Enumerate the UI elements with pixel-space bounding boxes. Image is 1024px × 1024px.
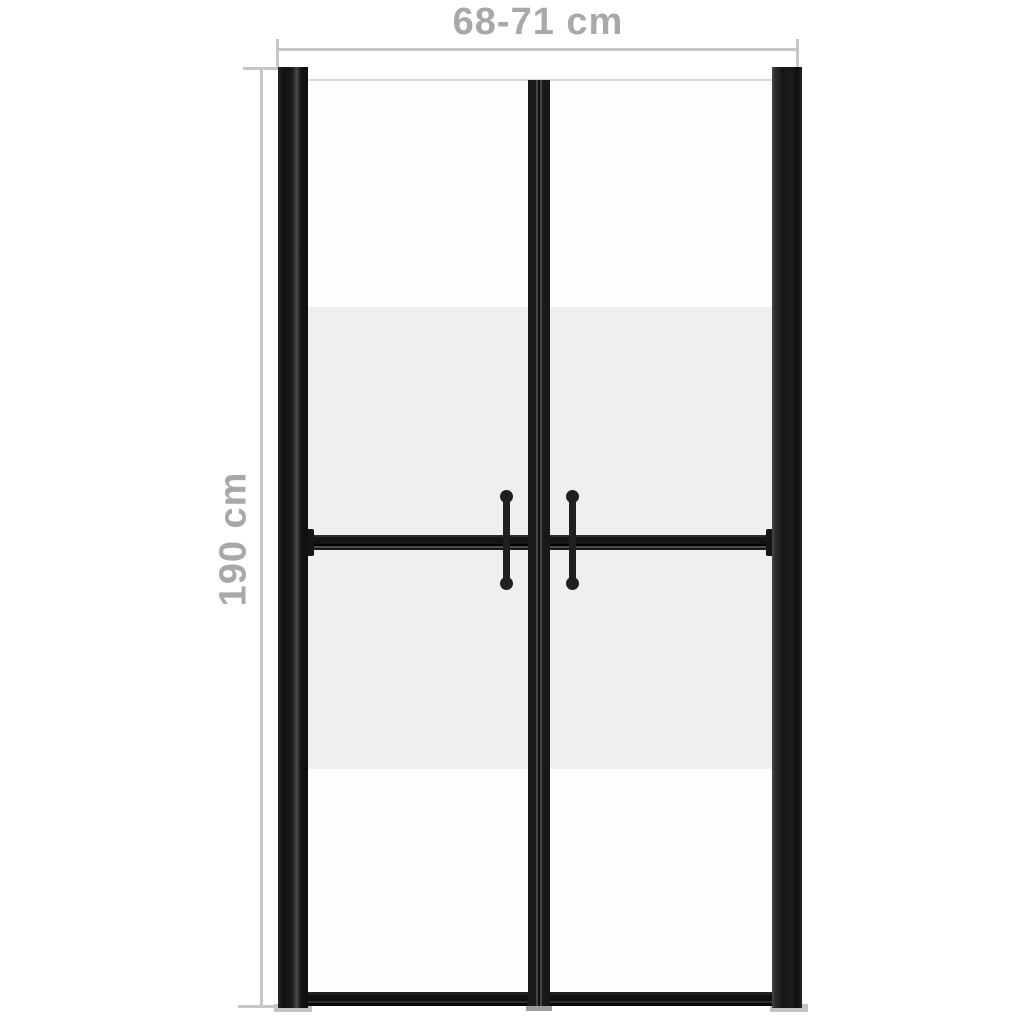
handle-rod bbox=[503, 496, 510, 584]
handle-rod bbox=[569, 496, 576, 584]
center-mullion bbox=[528, 80, 550, 1006]
shower-door-dimension-diagram: 68-71 cm 190 cm bbox=[0, 0, 1024, 1024]
height-dimension-line bbox=[260, 67, 263, 1008]
height-dimension-label: 190 cm bbox=[213, 472, 256, 607]
width-dimension-tick-left bbox=[276, 39, 279, 68]
width-dimension-label: 68-71 cm bbox=[277, 1, 799, 44]
right-wall-profile bbox=[772, 67, 802, 1008]
width-dimension-tick-right bbox=[796, 39, 799, 68]
left-door-handle bbox=[500, 490, 513, 590]
width-dimension-line bbox=[277, 48, 799, 51]
right-door-handle bbox=[566, 490, 579, 590]
height-dimension-tick-top bbox=[243, 67, 279, 70]
handle-bottom-knob bbox=[500, 577, 513, 590]
left-wall-profile bbox=[278, 67, 308, 1008]
handle-bottom-knob bbox=[566, 577, 579, 590]
